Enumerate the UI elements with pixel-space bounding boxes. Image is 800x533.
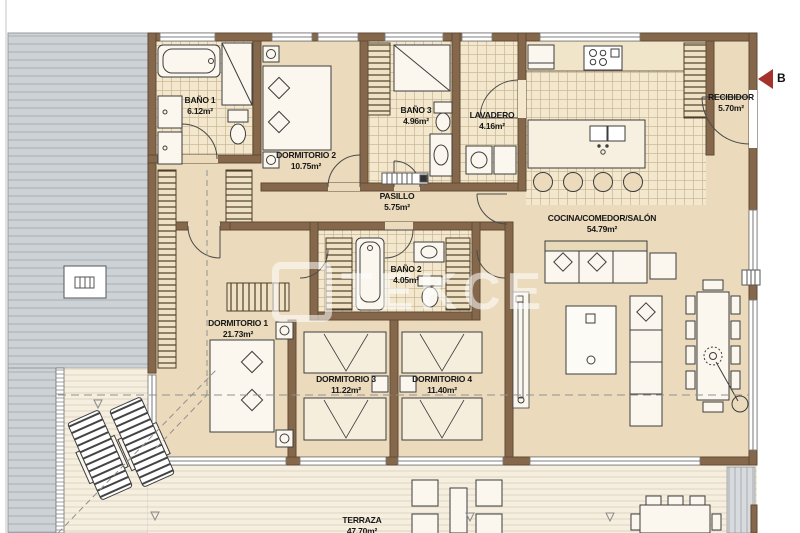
vanity <box>414 242 444 262</box>
room-area: 6.12m² <box>185 106 216 117</box>
room-label-dormitorio3: DORMITORIO 3 11.22m² <box>316 374 376 396</box>
kitchen-island <box>528 120 645 168</box>
roof-area <box>8 368 56 533</box>
chaise-sofa <box>630 296 662 426</box>
room-name: DORMITORIO 3 <box>316 374 376 385</box>
rug <box>566 306 616 374</box>
sofa <box>545 241 647 283</box>
wardrobe <box>446 238 470 310</box>
room-label-pasillo: PASILLO 5.75m² <box>380 191 415 213</box>
wardrobe <box>326 238 352 310</box>
fridge <box>528 45 554 69</box>
wall <box>220 222 230 230</box>
room-area: 54.79m² <box>548 224 656 235</box>
room-area: 11.40m² <box>412 385 472 396</box>
wall <box>452 33 460 191</box>
room-label-recibidor: RECIBIDOR 5.70m² <box>708 92 754 114</box>
room-name: DORMITORIO 2 <box>276 150 336 161</box>
bathtub <box>158 45 220 77</box>
room-label-terraza: TERRAZA 47.70m² <box>342 515 381 533</box>
tv-unit <box>513 292 529 408</box>
vanity <box>430 134 452 176</box>
room-area: 5.75m² <box>380 202 415 213</box>
room-area: 10.75m² <box>276 161 336 172</box>
room-name: BAÑO 1 <box>185 95 216 106</box>
wall <box>390 320 398 457</box>
washing-machine <box>466 146 516 174</box>
wall <box>310 222 318 320</box>
room-name: RECIBIDOR <box>708 92 754 103</box>
room-label-bano1: BAÑO 1 6.12m² <box>185 95 216 117</box>
room-name: PASILLO <box>380 191 415 202</box>
radiator <box>382 173 428 184</box>
wall <box>505 222 513 457</box>
roof-area <box>8 33 148 368</box>
room-label-dormitorio2: DORMITORIO 2 10.75m² <box>276 150 336 172</box>
wall <box>230 222 310 230</box>
room-name: LAVADERO <box>470 110 515 121</box>
dresser <box>227 283 289 311</box>
door-gap <box>385 222 413 230</box>
terrace-railing <box>56 368 64 533</box>
wall <box>176 222 188 230</box>
wall <box>472 222 480 320</box>
room-label-cocina: COCINA/COMEDOR/SALÓN 54.79m² <box>548 213 656 235</box>
room-area: 47.70m² <box>342 526 381 533</box>
room-area: 4.05m² <box>391 275 422 286</box>
door-gap <box>328 183 360 191</box>
outdoor-lounge-set <box>412 480 502 533</box>
room-area: 11.22m² <box>316 385 376 396</box>
room-label-lavadero: LAVADERO 4.16m² <box>470 110 515 132</box>
bathtub <box>356 238 384 310</box>
room-label-bano3: BAÑO 3 4.96m² <box>401 105 432 127</box>
side-table <box>650 253 676 279</box>
stove <box>584 46 622 70</box>
floor-plan: TEKCE B BAÑO 1 6.12m² DORMITORIO 2 10.75… <box>0 0 800 533</box>
room-name: DORMITORIO 1 <box>208 318 268 329</box>
room-area: 4.96m² <box>401 116 432 127</box>
room-name: COCINA/COMEDOR/SALÓN <box>548 213 656 224</box>
wall <box>253 41 261 161</box>
wall <box>360 41 368 183</box>
shower <box>394 45 450 91</box>
room-label-dormitorio4: DORMITORIO 4 11.40m² <box>412 374 472 396</box>
door-gap <box>518 80 526 118</box>
room-area: 21.73m² <box>208 329 268 340</box>
door-gap <box>188 222 220 230</box>
room-label-dormitorio1: DORMITORIO 1 21.73m² <box>208 318 268 340</box>
room-name: DORMITORIO 4 <box>412 374 472 385</box>
room-name: BAÑO 3 <box>401 105 432 116</box>
wall-vent <box>742 270 760 285</box>
wardrobe <box>158 170 176 368</box>
wall <box>148 33 156 373</box>
room-name: BAÑO 2 <box>391 264 422 275</box>
room-name: TERRAZA <box>342 515 381 526</box>
entrance-label: B <box>777 70 786 86</box>
door-gap <box>182 155 218 163</box>
wardrobe <box>368 43 390 115</box>
room-area: 5.70m² <box>708 103 754 114</box>
wardrobe <box>226 170 252 222</box>
room-label-bano2: BAÑO 2 4.05m² <box>391 264 422 286</box>
ac-unit <box>64 266 106 298</box>
wall-post <box>751 505 757 533</box>
room-area: 4.16m² <box>470 121 515 132</box>
wall <box>318 312 472 320</box>
shower <box>222 43 252 105</box>
